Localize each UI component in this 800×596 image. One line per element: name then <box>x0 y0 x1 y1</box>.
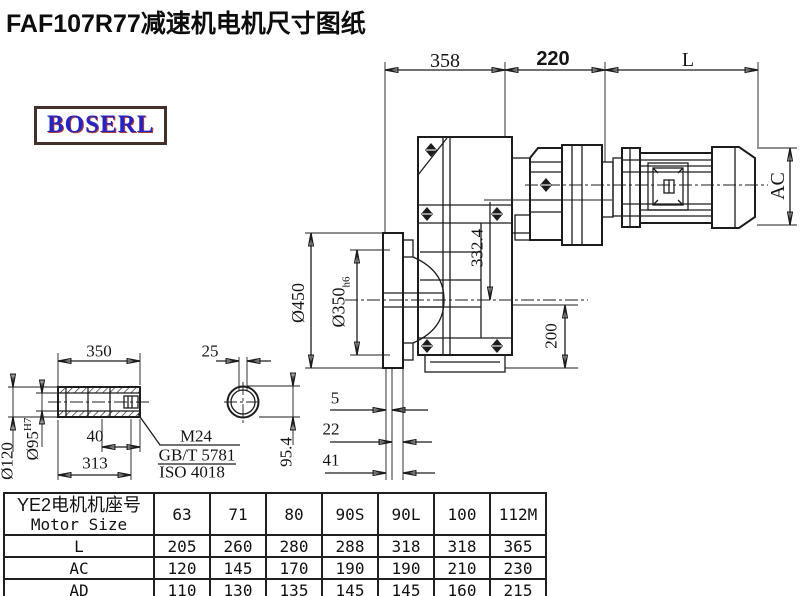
dim-flange-spigot-tolerance: h6 <box>340 277 352 288</box>
dim-recess-depth: 40 <box>87 428 104 445</box>
shaft-body <box>48 387 152 417</box>
table-size-col: 71 <box>210 493 266 535</box>
dim-shaft-od: Ø120 <box>0 442 16 480</box>
table-header-title: YE2电机机座号 Motor Size <box>4 493 154 535</box>
table-cell: 110 <box>154 579 210 596</box>
dim-adapter-width: 220 <box>536 49 569 69</box>
motor-size-table: YE2电机机座号 Motor Size 63 71 80 90S 90L 100… <box>3 492 547 596</box>
table-cell: 318 <box>378 535 434 557</box>
dim-gearbox-width: 358 <box>430 51 460 71</box>
table-cell: 365 <box>490 535 546 557</box>
table-cell: 120 <box>154 557 210 579</box>
dim-offset-a: 5 <box>331 390 340 407</box>
table-cell: 280 <box>266 535 322 557</box>
keyway-height-dimension <box>247 374 300 445</box>
table-row-L: L 205 260 280 288 318 318 365 <box>4 535 546 557</box>
table-cell: 170 <box>266 557 322 579</box>
drawing-page: FAF107R77减速机电机尺寸图纸 BOSERL <box>0 0 800 596</box>
motor-adapter <box>512 145 613 245</box>
label-thread-spec: M24 <box>180 428 212 445</box>
table-row-AC: AC 120 145 170 190 190 210 230 <box>4 557 546 579</box>
dim-offset-c: 41 <box>323 452 340 469</box>
output-flange <box>383 233 444 368</box>
fan-cover <box>712 147 755 228</box>
shaft-section-circle <box>224 357 262 423</box>
table-cell: 210 <box>434 557 490 579</box>
table-cell: 215 <box>490 579 546 596</box>
table-size-col: 80 <box>266 493 322 535</box>
face-offset-dimensions <box>325 368 435 480</box>
dim-keyway-width: 25 <box>202 343 219 360</box>
table-cell: 145 <box>378 579 434 596</box>
recess-depth-dimension <box>102 419 140 452</box>
table-size-col: 63 <box>154 493 210 535</box>
terminal-box <box>648 163 688 210</box>
table-cell: 145 <box>210 557 266 579</box>
table-cell: 160 <box>434 579 490 596</box>
table-cell: 230 <box>490 557 546 579</box>
dim-motor-diameter: AC <box>768 172 788 200</box>
table-cell: 130 <box>210 579 266 596</box>
table-cell: 205 <box>154 535 210 557</box>
bolt-symbols <box>421 143 503 353</box>
table-size-col: 90S <box>322 493 378 535</box>
dim-offset-b: 22 <box>323 421 340 438</box>
table-size-col: 90L <box>378 493 434 535</box>
table-cell: 260 <box>210 535 266 557</box>
dim-bore-depth: 313 <box>82 455 108 472</box>
dim-shaft-length: 350 <box>86 343 112 360</box>
shaft-detail-drawing <box>8 353 300 480</box>
dim-keyway-height: 95.4 <box>278 437 295 467</box>
dim-flange-spigot-value: Ø350 <box>329 288 349 328</box>
table-cell: 190 <box>322 557 378 579</box>
table-cell: 135 <box>266 579 322 596</box>
table-cell: 318 <box>434 535 490 557</box>
table-row-label: L <box>4 535 154 557</box>
table-cell: 145 <box>322 579 378 596</box>
main-view-drawing <box>305 62 797 480</box>
table-cell: 288 <box>322 535 378 557</box>
dim-flange-od: Ø450 <box>289 283 307 323</box>
table-size-col: 100 <box>434 493 490 535</box>
label-standard-gb: GB/T 5781 <box>159 447 236 464</box>
table-size-col: 112M <box>490 493 546 535</box>
table-row-AD: AD 110 130 135 145 145 160 215 <box>4 579 546 596</box>
gearbox-housing <box>418 137 512 372</box>
centerlines <box>345 185 768 300</box>
table-row-label: AC <box>4 557 154 579</box>
table-cell: 190 <box>378 557 434 579</box>
table-row-label: AD <box>4 579 154 596</box>
motor <box>613 147 755 228</box>
dim-center-height: 332.4 <box>469 229 486 267</box>
center-height-dimension <box>484 200 612 300</box>
label-standard-iso: ISO 4018 <box>159 464 225 481</box>
dim-shaft-bore-value: Ø95 <box>23 431 42 460</box>
table-header-en: Motor Size <box>5 516 153 534</box>
table-header-cn: YE2电机机座号 <box>5 495 153 516</box>
table-header-row: YE2电机机座号 Motor Size 63 71 80 90S 90L 100… <box>4 493 546 535</box>
dim-motor-length: L <box>682 50 694 70</box>
dim-flange-spigot: Ø350h6 <box>330 277 353 328</box>
dim-axis-to-base: 200 <box>543 323 560 349</box>
dim-shaft-bore: Ø95H7 <box>23 418 41 461</box>
dim-shaft-bore-tolerance: H7 <box>22 418 34 431</box>
